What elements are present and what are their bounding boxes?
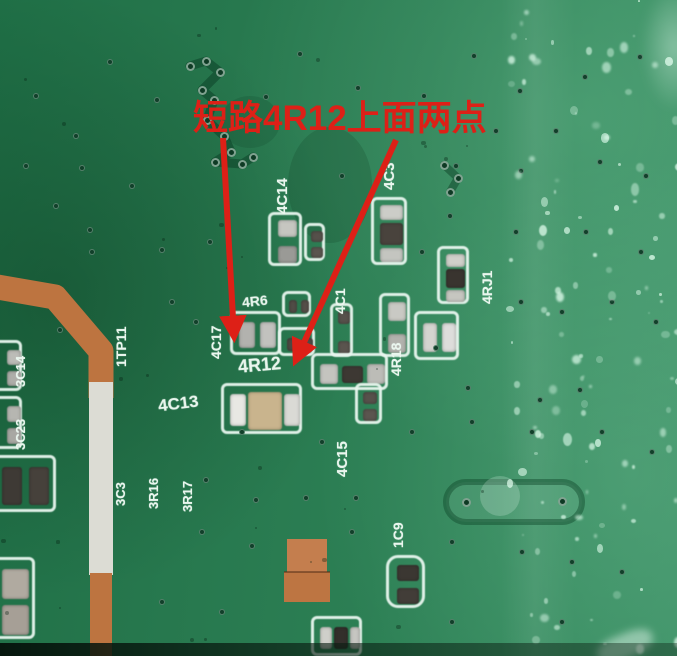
via [33,93,39,99]
glare-speckle [506,306,514,312]
glare-speckle [533,426,537,430]
glare-speckle [594,534,597,538]
dogbone-trace [446,482,582,522]
via [597,159,603,165]
via [599,429,605,435]
via [638,249,644,255]
smd-pad [2,569,29,599]
via [440,161,449,170]
glare-speckle [578,216,582,219]
glare-speckle [589,385,592,389]
glare-speckle [575,537,579,541]
via [87,227,93,233]
smd-pad [388,302,406,321]
glare-speckle [632,465,635,470]
via [193,319,199,325]
component-footprint-left-edge-3 [0,455,56,512]
dark-trace-pool [288,127,372,243]
via [454,174,463,183]
glare-speckle [620,42,628,53]
surface-speck [322,558,327,563]
via [559,619,565,625]
via [107,59,113,65]
glare-speckle [520,21,524,26]
glare-speckle [511,33,517,40]
surface-speck [146,374,149,377]
glare-speckle [597,544,603,553]
via [569,559,575,565]
via [319,439,325,445]
surface-speck [466,145,468,147]
label-3C14: 3C14 [14,356,27,387]
glare-speckle [540,614,549,622]
glare-speckle [599,523,605,528]
via [349,529,355,535]
glare-speckle [541,197,548,207]
glare-speckle [508,56,515,64]
smd-pad [338,341,350,354]
surface-speck [396,625,401,630]
component-footprint-1c9 [386,555,425,608]
glare-speckle [649,255,655,260]
glare-speckle [602,62,611,73]
glare-speckle [508,81,515,87]
glare-speckle [509,258,513,262]
glare-speckle [586,490,589,494]
surface-speck [344,508,346,510]
glare-speckle [539,433,545,439]
glare-speckle [614,205,619,211]
glare-speckle [518,468,527,476]
smd-pad [367,364,385,384]
via [582,74,588,80]
via [159,599,165,605]
annotation-text: 短路4R12上面两点 [193,90,487,141]
glare-speckle [586,47,591,55]
glare-speckle [537,240,544,250]
silkscreen-strip [89,382,113,575]
label-3R17: 3R17 [181,481,194,512]
via [169,299,175,305]
glare-speckle [666,445,672,453]
glare-speckle [561,515,566,519]
glare-speckle [555,179,559,182]
smd-pad [311,231,323,242]
glare-speckle [593,253,597,256]
smd-pad [2,467,22,505]
glare-speckle [525,38,527,40]
glare-speckle [541,307,547,314]
glare-speckle [580,376,584,381]
component-footprint-4c14 [268,212,302,266]
glare-speckle [648,312,650,315]
surface-speck [376,368,378,370]
label-4R12: 4R12 [237,354,281,376]
glare-speckle [563,433,572,446]
glare-speckle [535,430,541,438]
via [89,249,95,255]
via [583,229,589,235]
label-3R16: 3R16 [147,478,160,509]
glare-speckle [524,10,529,15]
via [449,619,455,625]
smd-pad [423,323,437,352]
smd-pad [446,290,465,302]
via [249,153,258,162]
glare-speckle [532,58,541,65]
glare-speckle [636,163,644,172]
via [73,133,79,139]
glare-speckle [595,439,601,447]
surface-speck [481,490,484,493]
via [513,229,519,235]
via [53,203,59,209]
glare-speckle [564,227,570,234]
label-4C3: 4C3 [382,162,397,190]
via [79,165,85,171]
smd-pad [239,322,255,348]
via [207,239,213,245]
surface-speck [226,267,228,269]
via-cluster-trace-2 [444,165,458,192]
via [518,299,524,305]
glare-speckle [653,236,658,240]
via [303,495,309,501]
glare-speckle [581,400,588,408]
via [653,319,659,325]
glare-speckle [618,163,621,166]
smd-pad [311,247,323,258]
glare-speckle [606,267,612,272]
via [419,249,425,255]
component-footprint-4c15 [355,383,382,424]
glare-speckle [549,385,557,394]
glare-speckle [582,375,584,378]
via [353,495,359,501]
smd-pad [446,269,465,288]
glare-speckle [638,0,640,2]
glare-speckle [575,515,582,520]
glare-speckle [585,460,588,463]
surface-speck [424,145,428,149]
via [219,609,225,615]
surface-speck [241,256,243,258]
via [239,429,245,435]
glare-speckle [596,356,603,363]
glare-speckle [608,228,613,235]
glare-blob [480,476,520,516]
via [619,569,625,575]
glare-speckle [554,190,557,193]
glare-speckle [534,452,538,455]
surface-speck [190,638,194,642]
label-4C13: 4C13 [157,393,199,415]
glare-speckle [604,135,609,140]
glare-speckle [634,357,641,365]
glare-speckle [672,116,677,125]
via [202,57,211,66]
label-3C23: 3C23 [14,419,27,450]
smd-pad [397,588,419,604]
glare-speckle [666,407,670,413]
smd-pad [284,394,300,426]
smd-pad [29,467,49,505]
glare-speckle [535,548,540,555]
component-footprint-4c3 [371,197,407,265]
glare-speckle [633,200,636,204]
label-1C9: 1C9 [391,522,405,548]
surface-speck [316,58,320,62]
via [449,539,455,545]
glare-speckle [522,534,524,536]
via [517,88,523,94]
via [57,327,63,333]
corner-glare [640,0,677,112]
label-4C1: 4C1 [333,288,347,314]
component-footprint-4c13 [221,383,302,434]
surface-speck [258,466,262,470]
via [643,173,649,179]
via [553,128,559,134]
surface-speck [162,238,165,241]
glare-speckle [511,341,513,344]
glare-speckle [514,407,520,415]
board-edge-shadow [0,643,677,656]
via [249,543,255,549]
smd-pad [230,394,246,426]
glare-speckle [659,213,664,219]
glare-speckle [552,406,560,415]
smd-pad [380,248,403,262]
copper-pad-rect-bottom [284,572,330,602]
surface-speck [62,122,66,126]
label-4R6: 4R6 [241,293,268,310]
glare-speckle [570,106,578,116]
glare-speckle [622,460,628,467]
label-4R18: 4R18 [389,343,403,376]
component-footprint-4c17-pair [230,311,281,355]
smd-pad [397,565,419,581]
glare-speckle [507,479,513,488]
glare-speckle [645,286,648,290]
label-4C14: 4C14 [275,178,290,214]
component-footprint-4r12-points [278,327,315,356]
glare-speckle [545,211,549,215]
glare-speckle [572,571,576,577]
smd-pad [380,223,403,245]
glare-speckle [631,519,636,523]
smd-pad [289,300,297,313]
smd-pad [363,392,377,404]
glare-speckle [622,504,626,510]
surface-speck [56,540,59,543]
glare-speckle [670,377,674,380]
surface-speck [383,337,386,340]
label-1TP11: 1TP11 [114,327,128,367]
glare-speckle [640,588,643,591]
glare-speckle [555,287,561,295]
via [453,163,459,169]
glare-speckle [592,122,600,128]
glare-speckle [554,625,559,630]
via [409,429,415,435]
via [23,163,29,169]
via [186,62,195,71]
smd-pad [446,254,465,267]
glare-speckle [529,156,535,162]
glare-speckle [625,89,632,95]
via [433,345,439,351]
via [447,213,453,219]
via [159,247,165,253]
via [469,419,475,425]
via [462,498,471,507]
glare-speckle [559,332,564,337]
surface-speck [219,223,223,227]
via [253,497,259,503]
glare-speckle [572,355,581,365]
via [339,173,345,179]
glare-speckle [515,171,522,179]
glare-speckle [575,112,577,115]
via [558,497,567,506]
via [649,449,655,455]
glare-speckle [522,79,527,85]
surface-speck [255,527,258,530]
via [297,51,303,57]
smd-pad [320,364,338,384]
component-footprint-4r10 [311,353,388,390]
surface-speck [310,561,313,564]
surface-speck [204,638,207,641]
via [465,385,471,391]
component-footprint-4c14-aux [304,223,325,261]
glare-speckle [633,35,635,37]
via [238,160,247,169]
glare-speckle [613,591,621,599]
smd-pad [302,338,313,351]
glare-speckle [546,312,550,316]
via [203,477,209,483]
glare-speckle [544,598,549,604]
via [559,309,565,315]
pcb-photo: 4C14 4C3 4RJ1 4R6 4C17 4R12 4C1 4R18 4C1… [0,0,677,656]
glare-speckle [659,293,662,297]
glare-speckle [660,428,666,436]
glare-speckle [661,331,669,338]
copper-pad-rect-top [287,539,327,573]
label-4C15: 4C15 [335,441,350,477]
surface-speck [444,157,448,161]
glare-speckle [660,300,662,303]
via [227,148,236,157]
smd-pad [301,300,309,313]
glare-speckle [541,501,545,504]
via [446,188,455,197]
via [199,529,205,535]
annotation-arrow-left [223,138,234,336]
smd-pad [2,605,29,635]
glare-speckle [607,48,614,57]
glare-speckle [590,619,593,622]
smd-pad [278,246,297,263]
smd-pad [380,205,403,220]
surface-speck [1,539,6,544]
label-3C3: 3C3 [114,482,127,506]
via [577,387,583,393]
via [471,53,477,59]
surface-speck [119,377,122,380]
smd-pad [363,409,377,421]
component-footprint-4r18-b [414,311,459,360]
surface-speck [59,607,61,609]
smd-pad [287,338,298,351]
glare-speckle [551,40,554,44]
via [216,68,225,77]
glare-speckle [530,613,532,616]
glare-speckle [539,225,547,236]
via [537,397,543,403]
via [518,168,524,174]
via [154,97,160,103]
smd-pad [248,392,282,430]
via [493,128,499,134]
component-footprint-4rj1 [437,246,469,304]
glare-speckle [609,318,612,320]
surface-speck [421,141,426,146]
surface-speck [215,27,217,29]
surface-speck [5,611,9,615]
via [519,549,525,555]
glare-speckle [589,443,595,450]
via [529,429,535,435]
component-footprint-left-edge-4 [0,557,35,639]
glare-speckle [636,290,641,295]
label-4RJ1: 4RJ1 [480,271,494,304]
glare-speckle [514,381,520,387]
glare-speckle [631,183,639,195]
glare-speckle [579,354,583,357]
smd-pad [442,323,456,352]
smd-pad [260,322,276,348]
smd-pad [278,220,297,237]
label-4C17: 4C17 [209,326,223,359]
via [609,299,615,305]
via [129,183,135,189]
glare-speckle [608,291,616,301]
glare-speckle [601,133,609,142]
glare-speckle [556,292,564,302]
surface-speck [197,34,200,37]
glare-speckle [581,410,586,416]
glare-speckle [573,282,578,288]
smd-pad [342,366,363,383]
via [211,158,220,167]
glare-speckle [529,54,536,62]
component-footprint-4r6 [282,291,311,317]
surface-speck [24,78,27,81]
